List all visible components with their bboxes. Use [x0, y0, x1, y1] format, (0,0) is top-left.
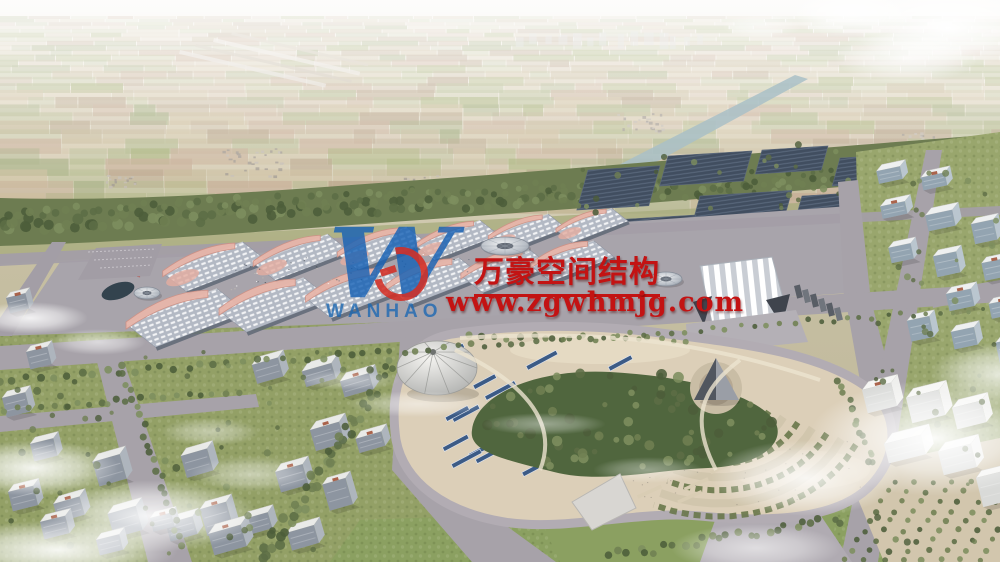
rendered-scene [0, 0, 1000, 562]
aerial-rendering: W WANHAO 万豪空间结构 www.zgwhmjg.com [0, 0, 1000, 562]
